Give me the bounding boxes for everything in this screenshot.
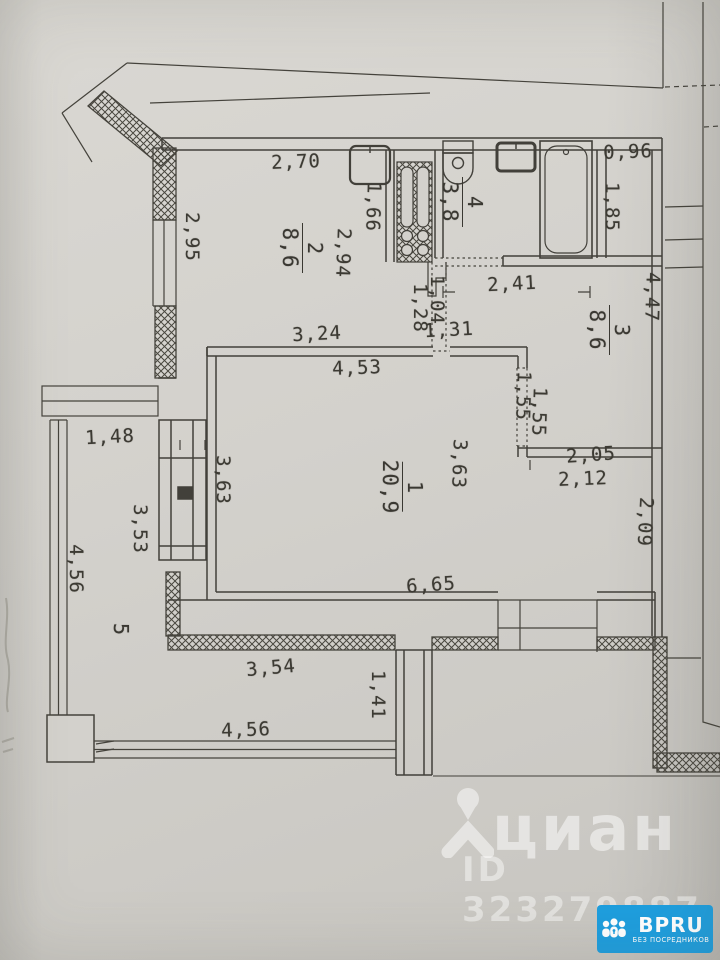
dimension-label: 6,65 (405, 572, 456, 597)
dimension-label: 2,94 (331, 228, 355, 279)
dimension-label: 4,56 (65, 544, 87, 594)
room-label: 120,9 (379, 460, 425, 515)
room-area: 3,8 (439, 182, 460, 223)
dimension-label: 1,55 (527, 387, 551, 438)
room-area: 20,9 (379, 460, 400, 515)
room-fraction-bar (302, 223, 303, 273)
room-label: 43,8 (439, 177, 485, 227)
room-area: 8,6 (586, 310, 607, 351)
dimension-label: 1,48 (85, 425, 136, 450)
room-fraction-bar (462, 177, 463, 227)
room-number: 4 (465, 196, 485, 208)
dimension-label: 1,04 (426, 275, 448, 325)
dimension-label: 3,24 (292, 322, 343, 347)
room-fraction-bar (609, 305, 610, 355)
dimension-label: 3,63 (212, 455, 234, 505)
room-label: 38,6 (586, 305, 632, 355)
dimension-label: 2,70 (271, 150, 322, 174)
floorplan-scan: 2,700,962,411,313,244,532,052,126,651,48… (0, 0, 720, 960)
dimension-label: 4,56 (221, 718, 272, 742)
dimension-label: 1,41 (367, 670, 389, 720)
dimension-label: 3,63 (447, 439, 471, 490)
dimension-label: 4,47 (640, 272, 664, 323)
room-area: 8,6 (279, 228, 300, 269)
room-number: 3 (612, 324, 632, 336)
room-number: 1 (405, 481, 425, 493)
dimension-label: 3,54 (245, 655, 296, 681)
room-number: 2 (305, 242, 325, 254)
bpru-badge[interactable]: BPRU БЕЗ ПОСРЕДНИКОВ (597, 905, 713, 953)
room-label: 5 (111, 623, 131, 635)
dimension-label: 2,95 (181, 212, 203, 262)
people-group-icon (601, 917, 627, 941)
labels-layer: 2,700,962,411,313,244,532,052,126,651,48… (0, 0, 720, 960)
dimension-label: 0,96 (603, 140, 654, 164)
dimension-label: 4,53 (332, 356, 383, 380)
dimension-label: 1,85 (601, 182, 623, 232)
dimension-label: 1,66 (361, 182, 385, 233)
dimension-label: 3,53 (129, 504, 151, 554)
room-number: 5 (111, 623, 131, 635)
room-fraction-bar (402, 462, 403, 512)
dimension-label: 2,09 (633, 497, 658, 548)
room-label: 28,6 (279, 223, 325, 273)
dimension-label: 2,05 (565, 442, 616, 467)
dimension-label: 2,41 (487, 272, 538, 297)
badge-tagline: БЕЗ ПОСРЕДНИКОВ (633, 937, 710, 944)
dimension-label: 2,12 (558, 467, 609, 491)
badge-brand: BPRU (638, 915, 704, 935)
